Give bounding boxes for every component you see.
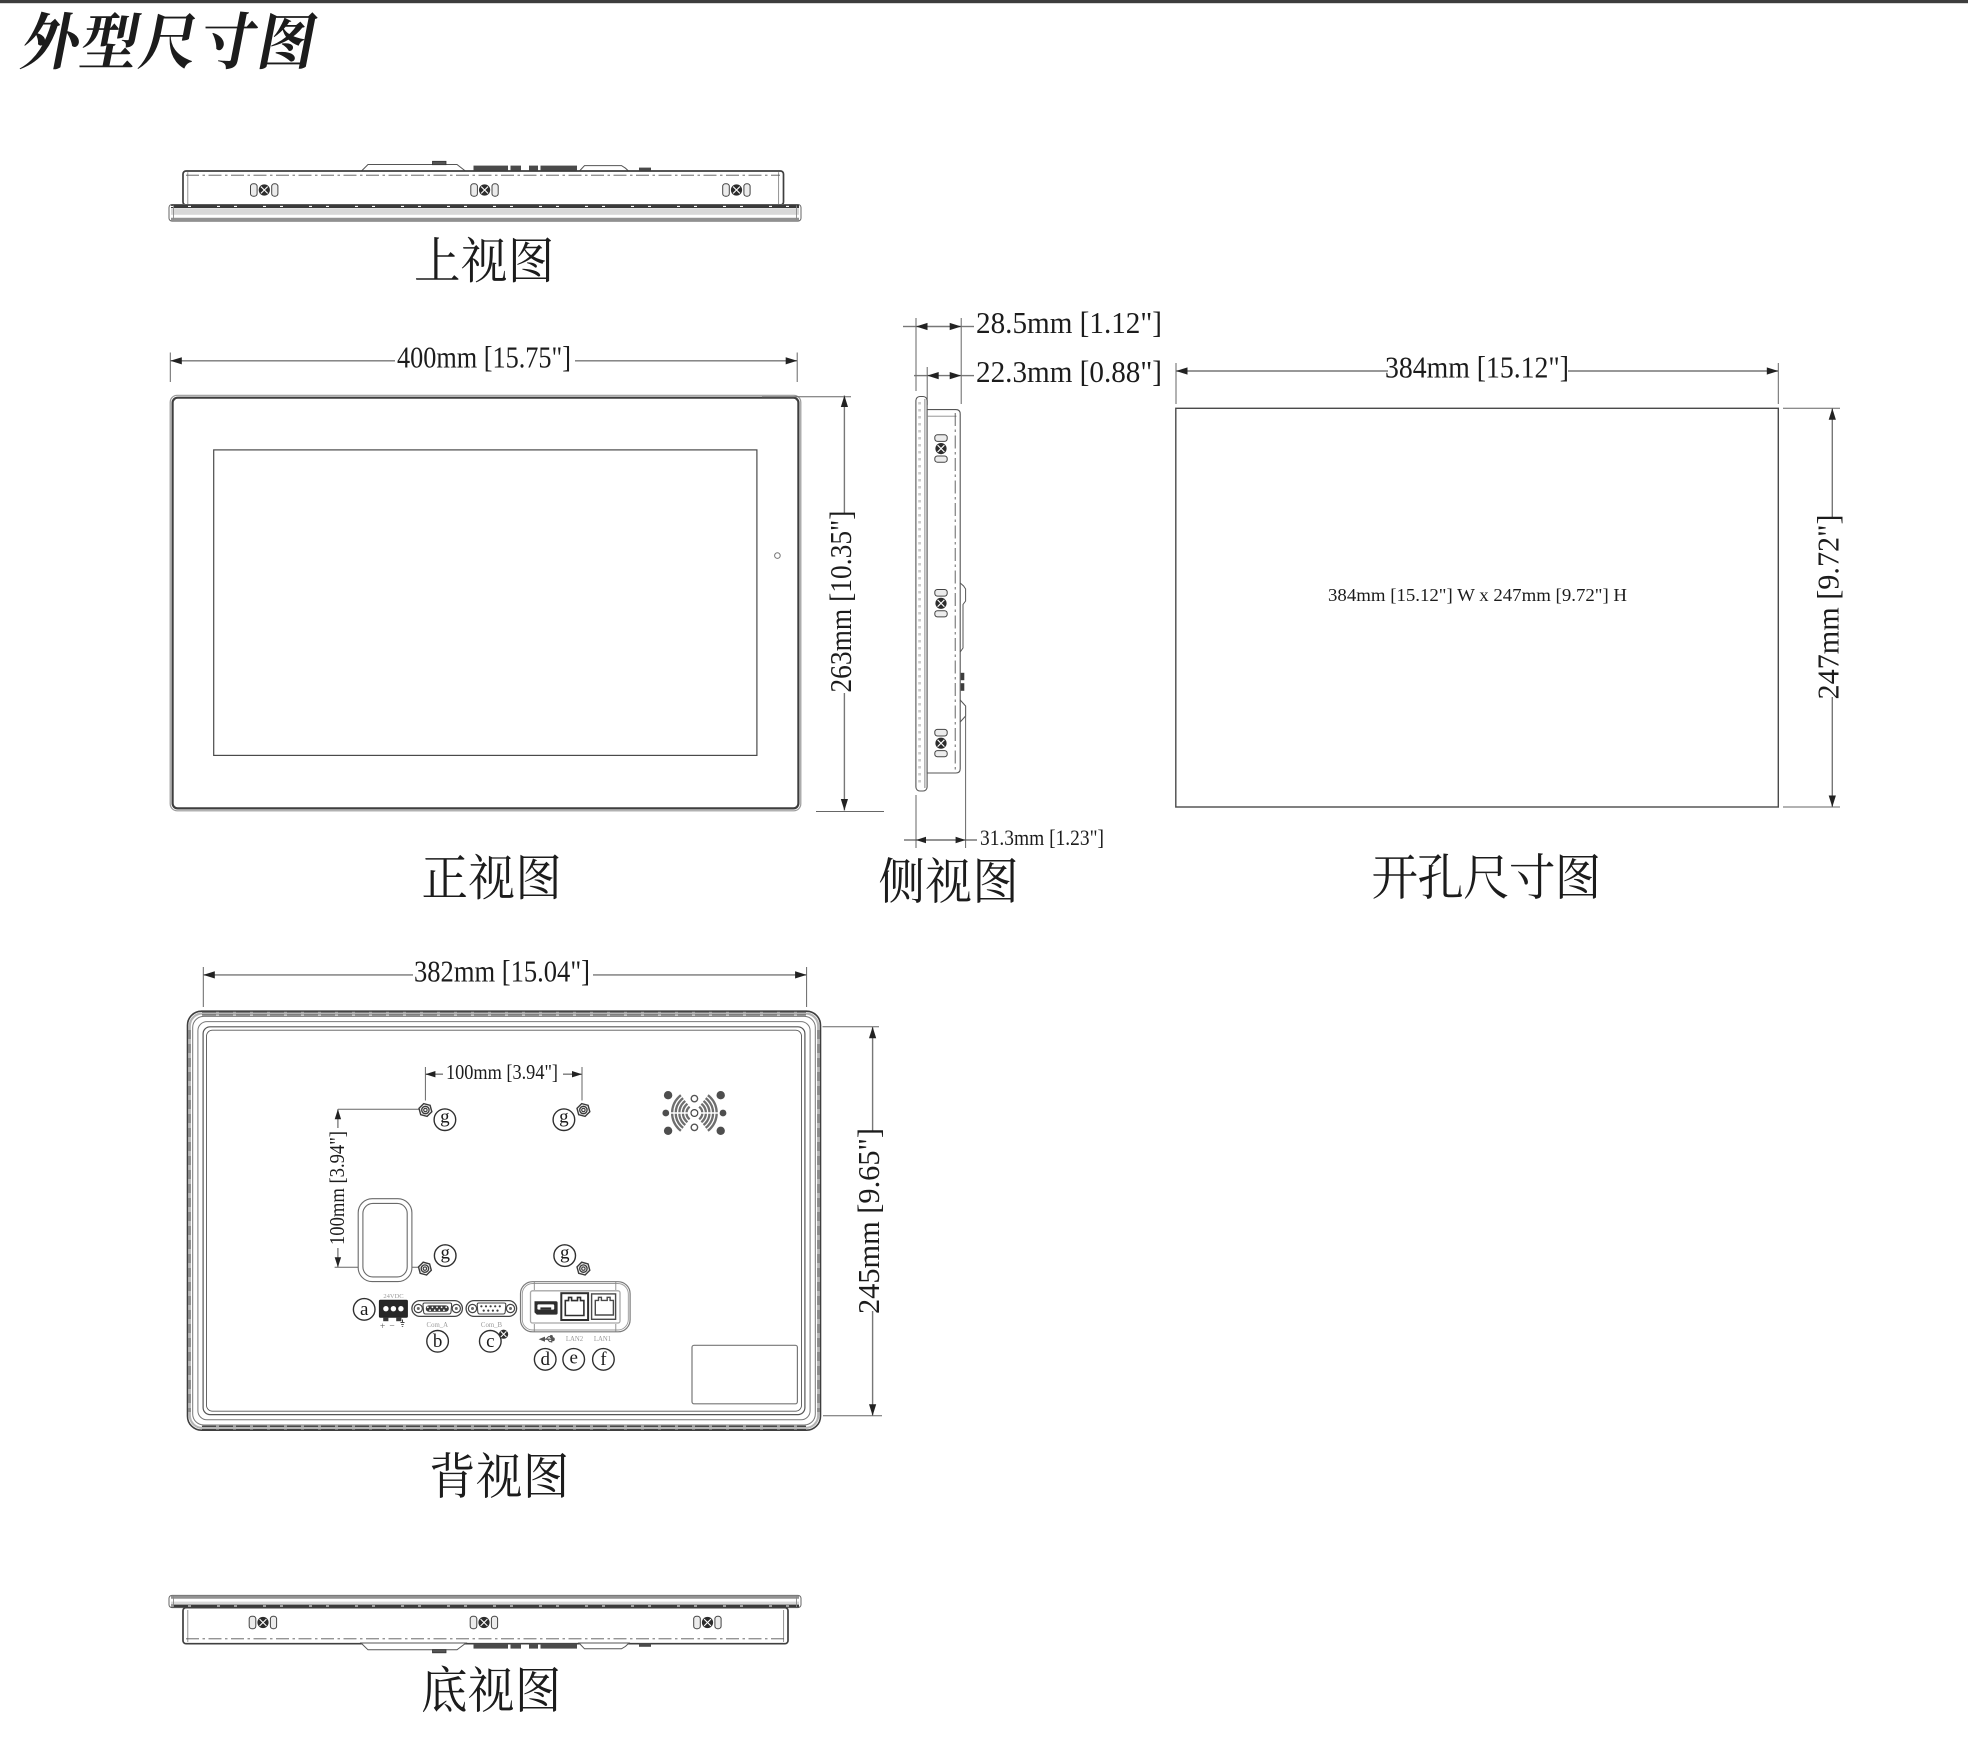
svg-text:g: g [440,1107,450,1128]
svg-text:22.3mm [0.88"]: 22.3mm [0.88"] [976,354,1162,389]
svg-text:LAN2: LAN2 [566,1336,584,1343]
svg-text:28.5mm [1.12"]: 28.5mm [1.12"] [976,305,1162,340]
svg-text:245mm [9.65"]: 245mm [9.65"] [851,1128,886,1314]
svg-text:100mm [3.94"]: 100mm [3.94"] [325,1131,349,1245]
svg-text:384mm [15.12"] W x 247mm [9.72: 384mm [15.12"] W x 247mm [9.72"] H [1328,585,1627,605]
svg-text:+: + [380,1322,385,1332]
svg-text:384mm [15.12"]: 384mm [15.12"] [1385,350,1569,385]
svg-text:−: − [389,1322,394,1332]
svg-text:400mm [15.75"]: 400mm [15.75"] [397,339,571,374]
svg-text:263mm [10.35"]: 263mm [10.35"] [823,511,858,693]
svg-text:e: e [569,1347,577,1368]
svg-text:g: g [440,1243,450,1264]
svg-text:a: a [360,1299,369,1320]
svg-text:g: g [560,1243,570,1264]
svg-text:100mm [3.94"]: 100mm [3.94"] [446,1060,558,1084]
svg-text:Com_A: Com_A [427,1322,449,1329]
svg-text:b: b [433,1331,443,1352]
svg-text:d: d [540,1349,550,1370]
svg-text:247mm [9.72"]: 247mm [9.72"] [1811,515,1846,700]
svg-text:LAN1: LAN1 [594,1336,611,1343]
svg-text:24VDC: 24VDC [383,1293,403,1300]
svg-text:31.3mm [1.23"]: 31.3mm [1.23"] [980,825,1104,850]
svg-text:Com_B: Com_B [481,1322,503,1329]
svg-text:f: f [600,1349,607,1370]
svg-text:c: c [486,1331,494,1352]
svg-text:382mm [15.04"]: 382mm [15.04"] [414,953,590,988]
svg-text:g: g [559,1107,569,1128]
